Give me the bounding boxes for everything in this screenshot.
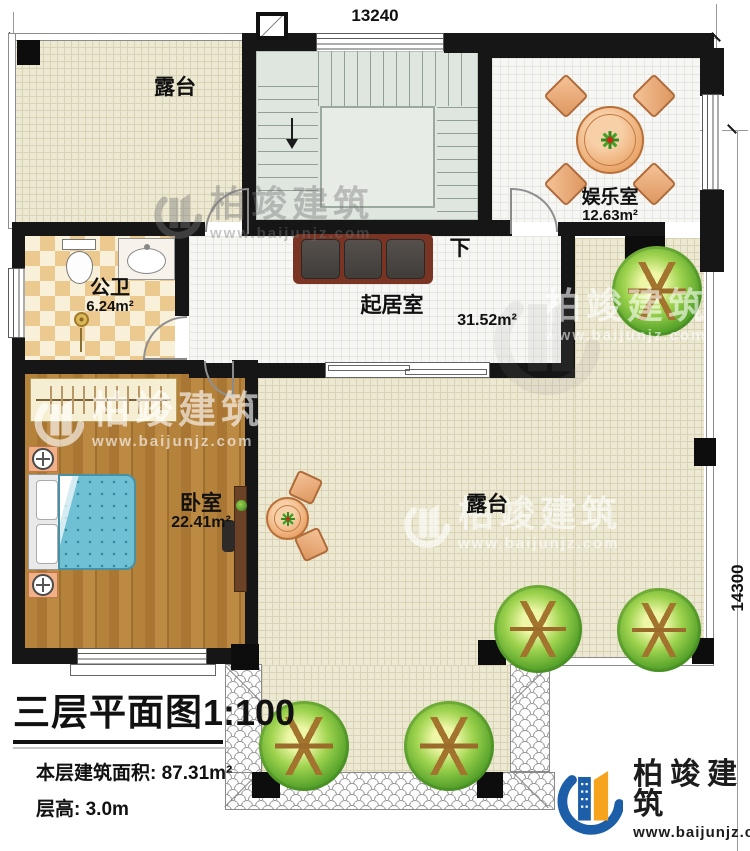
wall	[558, 222, 665, 236]
parapet-wall	[8, 33, 255, 41]
plan-scale: 1:100	[203, 692, 295, 733]
floor-area-text: 本层建筑面积: 87.31m²	[36, 758, 295, 785]
flue-box	[256, 12, 288, 40]
column	[17, 40, 40, 65]
column	[231, 644, 259, 670]
window-sill	[70, 664, 216, 676]
room-label-terrace-top: 露台	[131, 76, 219, 99]
tree-icon	[494, 585, 582, 673]
room-label-entertainment: 娱乐室	[560, 188, 660, 209]
dimension-label-top: 13240	[330, 6, 420, 26]
column	[694, 438, 716, 466]
roof-tile-band	[510, 664, 550, 772]
floor-plan-canvas: 13240 14300	[0, 0, 750, 851]
logo-brand: 柏竣建筑	[633, 760, 750, 820]
window-bathroom	[8, 268, 25, 338]
door-leaf	[232, 361, 234, 397]
plan-title: 三层平面图	[13, 692, 203, 733]
room-label-terrace-main: 露台	[443, 493, 531, 516]
nightstand	[28, 572, 58, 598]
dimension-label-right: 14300	[728, 548, 748, 628]
stair-flight-top	[318, 51, 462, 106]
wall	[700, 190, 724, 272]
toilet-icon	[62, 239, 96, 250]
tree-icon	[617, 588, 701, 672]
table-plant-icon	[601, 131, 619, 149]
window-stairwell	[316, 33, 444, 51]
floor-height-text: 层高: 3.0m	[36, 794, 295, 821]
wall	[478, 51, 492, 236]
bed-mattress	[58, 474, 136, 570]
room-label-living: 起居室	[346, 294, 438, 317]
logo-mark-icon	[548, 763, 623, 839]
sink-icon	[127, 248, 166, 274]
pillow	[36, 480, 58, 520]
nightstand	[28, 446, 58, 472]
room-area-living: 31.52m²	[452, 312, 522, 330]
room-label-bathroom: 公卫	[75, 277, 145, 299]
window-bedroom	[77, 648, 207, 664]
dimension-extension-line	[716, 4, 717, 52]
room-area-bedroom: 22.41m²	[155, 514, 247, 532]
terrace-top-floor	[15, 40, 242, 222]
floor-drain-icon	[80, 328, 82, 352]
logo: 柏竣建筑 www.baijunjz.com	[548, 760, 750, 841]
sofa	[293, 234, 433, 284]
lamp-icon	[32, 448, 54, 470]
wall	[12, 648, 77, 664]
door-leaf	[510, 188, 512, 234]
room-area-bathroom: 6.24m²	[72, 298, 148, 315]
logo-url: www.baijunjz.com	[633, 824, 750, 841]
faucet-icon	[144, 244, 150, 250]
pillow	[36, 524, 58, 564]
title-underline-thin	[13, 747, 229, 749]
dimension-tick-icon	[727, 124, 737, 134]
watermark-logo-icon	[480, 280, 600, 400]
down-arrow-icon	[286, 139, 298, 149]
stair-flight-right	[437, 107, 478, 213]
wall	[175, 236, 189, 316]
table-plant-icon	[281, 512, 295, 526]
wall	[444, 33, 492, 53]
wall	[490, 33, 714, 58]
room-label-bedroom: 卧室	[163, 492, 239, 515]
tree-icon	[404, 701, 494, 791]
door-leaf	[143, 358, 187, 360]
tree-icon	[612, 246, 702, 336]
wall	[12, 374, 25, 648]
sliding-door-living	[325, 362, 490, 378]
down-arrow-icon	[291, 118, 293, 140]
window-entertainment	[702, 94, 722, 190]
room-area-entertainment: 12.63m²	[560, 207, 660, 224]
wall	[12, 338, 25, 362]
stair-direction-label: 下	[446, 237, 474, 260]
wall	[12, 360, 204, 374]
wardrobe	[30, 378, 177, 422]
dimension-line-right	[737, 130, 738, 851]
title-underline	[13, 740, 223, 744]
wall	[12, 236, 25, 268]
stair-landing	[320, 106, 435, 208]
door-leaf	[247, 188, 249, 234]
parapet-wall	[8, 33, 16, 229]
title-block: 三层平面图1:100 本层建筑面积: 87.31m² 层高: 3.0m	[13, 682, 295, 821]
lamp-icon	[32, 574, 54, 596]
wall	[12, 222, 205, 236]
wall	[700, 48, 724, 96]
